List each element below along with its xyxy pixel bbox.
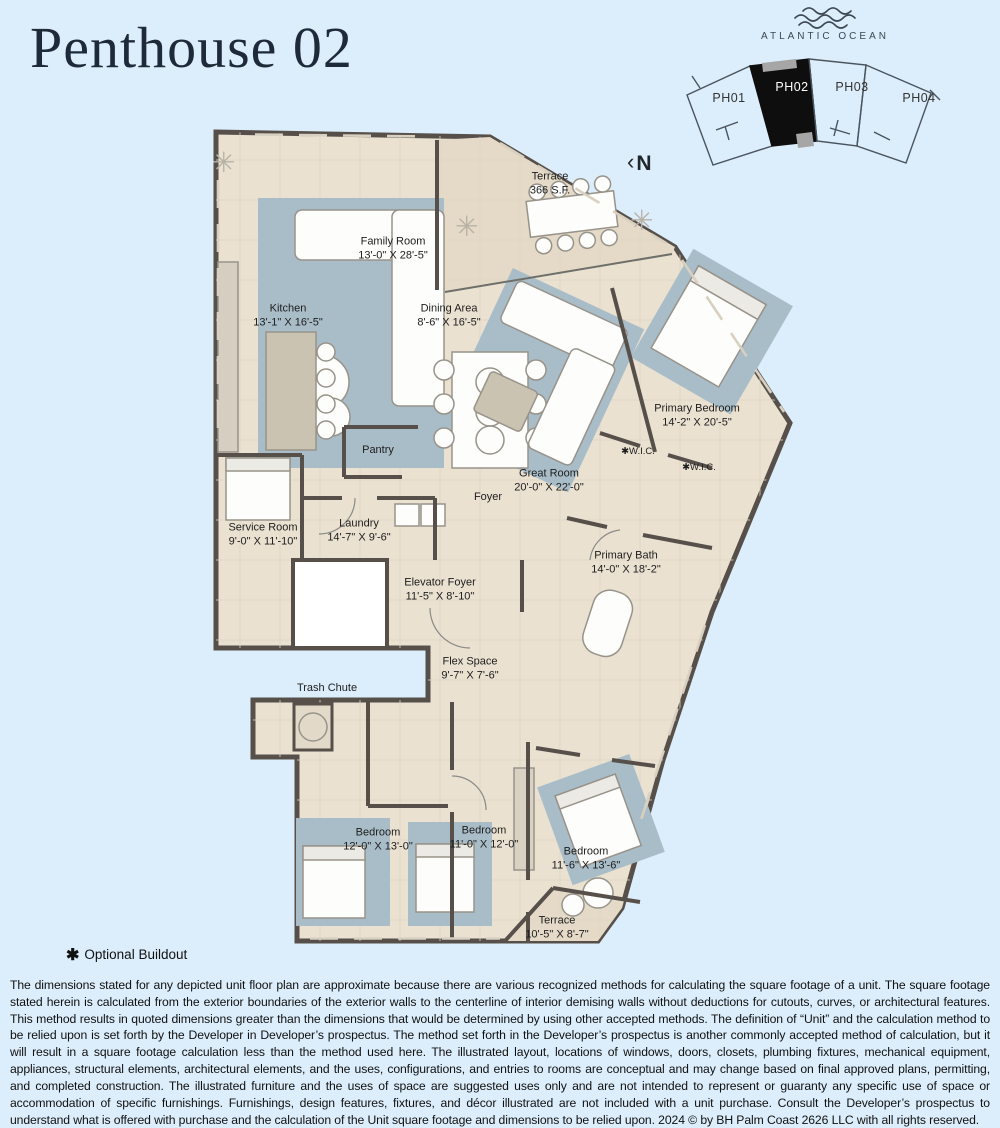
room-label-elevator-foyer: Elevator Foyer11'-5" X 8'-10" (404, 576, 476, 605)
room-label-primary-bedroom: Primary Bedroom14'-2" X 20'-5" (654, 402, 740, 431)
svg-text:✳: ✳ (212, 146, 235, 179)
room-label-great-room: Great Room20'-0" X 22'-0" (514, 467, 584, 496)
room-label-family-room: Family Room13'-0" X 28'-5" (358, 235, 428, 264)
svg-text:✳: ✳ (630, 204, 653, 237)
room-label-bedroom-1: Bedroom12'-0" X 13'-0" (343, 826, 413, 855)
closet (514, 768, 534, 870)
room-label-bedroom-2: Bedroom11'-0" X 12'-0" (450, 824, 519, 853)
room-label-terrace-lower: Terrace10'-5" X 8'-7" (525, 914, 588, 943)
optional-buildout-footnote: ✱Optional Buildout (66, 944, 187, 964)
kitchen-island (266, 332, 316, 450)
kitchen-counter (218, 262, 238, 452)
room-label-primary-bath: Primary Bath14'-0" X 18'-2" (591, 549, 661, 578)
room-label-bedroom-3: Bedroom11'-6" X 13'-6" (552, 845, 621, 874)
svg-text:✳: ✳ (455, 210, 478, 243)
room-label-foyer: Foyer (474, 490, 502, 504)
room-label-trash-chute: Trash Chute (297, 681, 357, 695)
legal-disclaimer: The dimensions stated for any depicted u… (10, 977, 990, 1128)
room-label-terrace-upper: Terrace366 S.F. (530, 170, 570, 199)
room-label-wic-2: ✱W.I.C. (682, 462, 716, 474)
asterisk-icon: ✱ (66, 947, 79, 964)
room-label-pantry: Pantry (362, 443, 394, 457)
room-label-laundry: Laundry14'-7" X 9'-6" (327, 517, 390, 546)
footnote-label: Optional Buildout (84, 947, 187, 962)
room-label-dining-area: Dining Area8'-6" X 16'-5" (417, 302, 480, 331)
room-label-service-room: Service Room9'-0" X 11'-10" (228, 521, 297, 550)
room-label-wic-1: ✱W.I.C. (621, 446, 655, 458)
room-label-kitchen: Kitchen13'-1" X 16'-5" (253, 302, 323, 331)
room-label-flex-space: Flex Space9'-7" X 7'-6" (441, 655, 498, 684)
